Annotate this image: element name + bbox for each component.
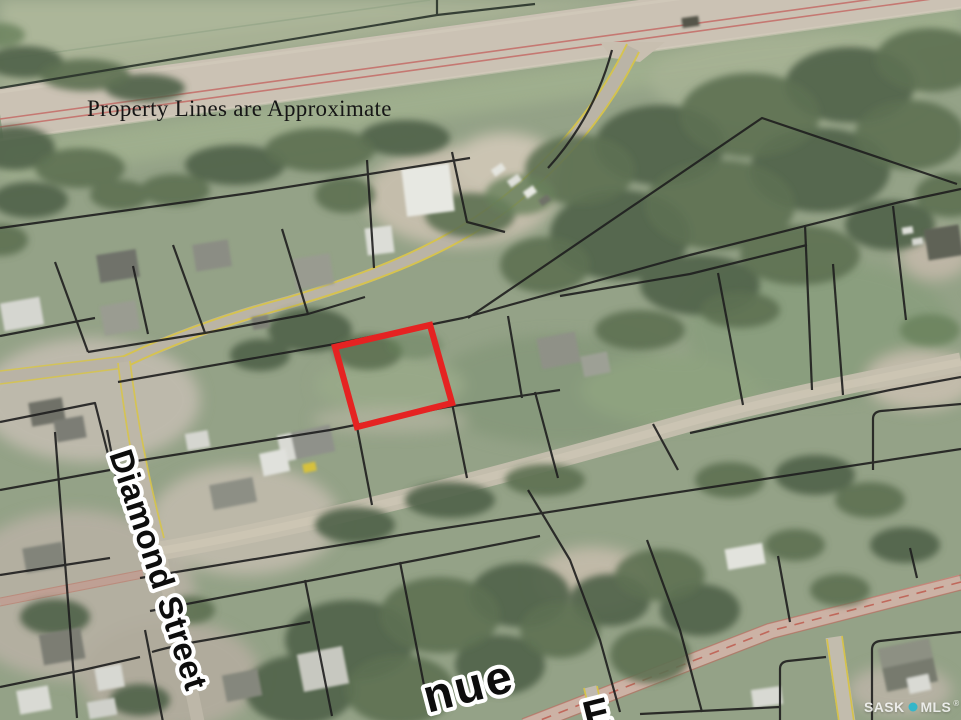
watermark-mls: MLS xyxy=(921,699,952,715)
watermark-sask: SASK xyxy=(864,699,905,715)
saskmls-dot-icon xyxy=(908,702,918,712)
saskmls-dot-circle xyxy=(908,703,917,712)
watermark: SASK MLS ® xyxy=(864,699,960,715)
disclaimer-text: Property Lines are Approximate xyxy=(87,96,392,122)
watermark-registered: ® xyxy=(953,699,959,708)
aerial-parcel-map: Diamond Street nue E Property Lines are … xyxy=(0,0,961,720)
